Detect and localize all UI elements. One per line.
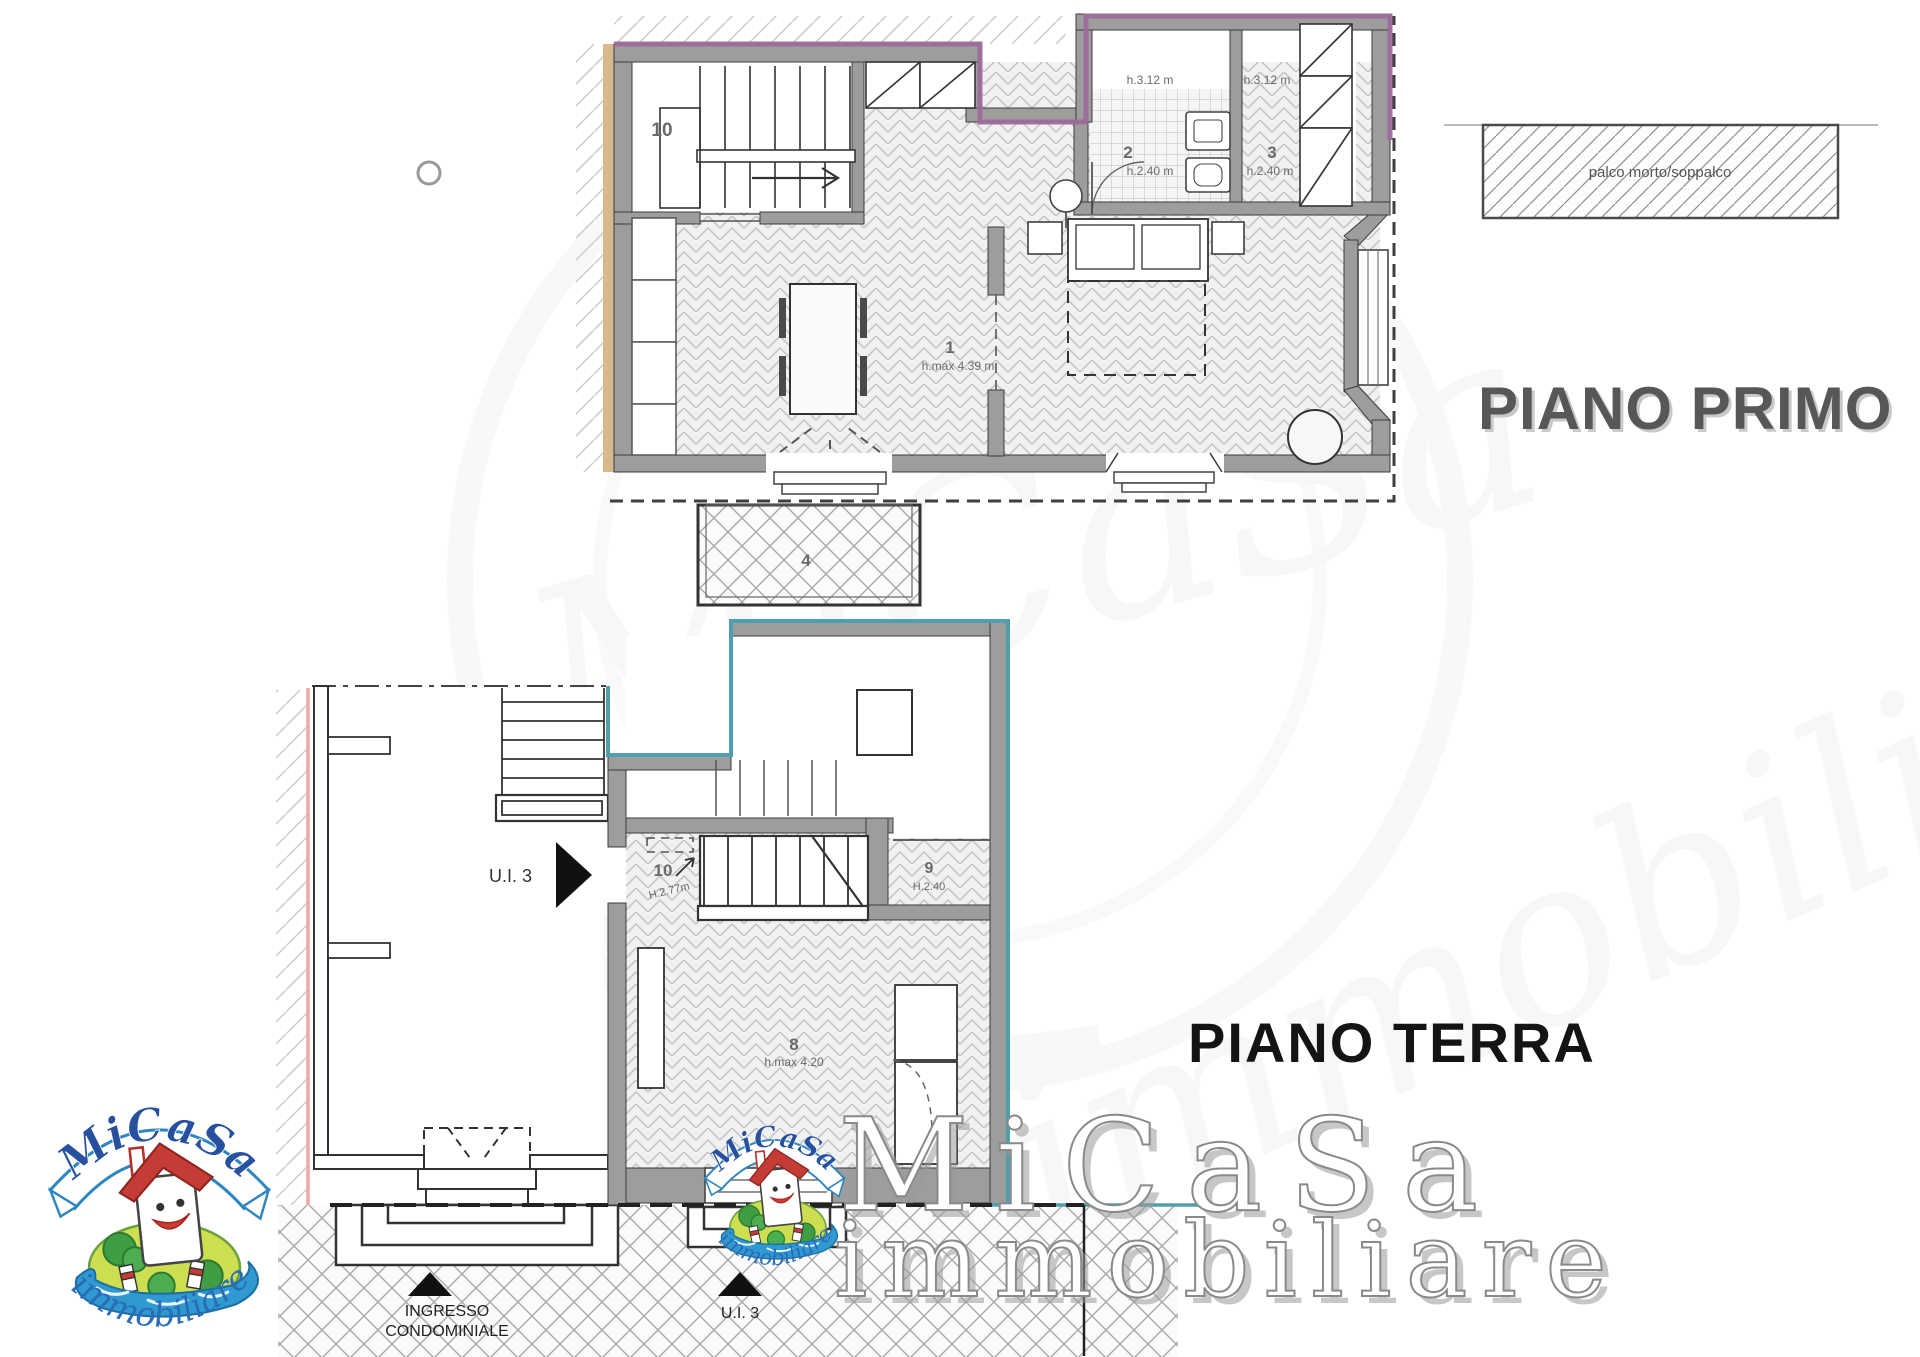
room9-parquet bbox=[888, 838, 990, 905]
registration-circle bbox=[418, 162, 440, 184]
hall-entrance-steps bbox=[336, 1205, 618, 1265]
room-2-height: h.2.40 m bbox=[1127, 164, 1174, 178]
piano-terra-text: PIANO TERRA bbox=[1188, 1011, 1596, 1074]
condominium-hall: U.I. 3 bbox=[314, 686, 618, 1265]
room-8-height: h.max 4.20 bbox=[764, 1055, 824, 1069]
legend: palco morto/soppalco bbox=[1444, 125, 1878, 218]
first-floor-title: PIANO PRIMO PIANO PRIMO bbox=[1478, 375, 1895, 445]
room-9-label: 9 bbox=[925, 860, 934, 877]
stair-shaft bbox=[857, 690, 912, 755]
room-3-label: 3 bbox=[1267, 143, 1276, 162]
unit-entrance-label: U.I. 3 bbox=[721, 1305, 759, 1322]
room-1-label: 1 bbox=[945, 338, 954, 357]
exterior-hatch-left bbox=[576, 44, 603, 472]
wardrobe-closet bbox=[1300, 24, 1352, 206]
unit-label-hall: U.I. 3 bbox=[489, 866, 532, 886]
closet-upper-height: h.3.12 m bbox=[1244, 73, 1291, 87]
tan-wall-edge bbox=[603, 44, 614, 472]
dining-table bbox=[779, 284, 867, 414]
round-table bbox=[1288, 410, 1342, 464]
bath-upper-height: h.3.12 m bbox=[1127, 73, 1174, 87]
room-3-height: h.2.40 m bbox=[1247, 164, 1294, 178]
ingresso-line1: INGRESSO bbox=[405, 1303, 489, 1320]
room-10t-label: 10 bbox=[654, 861, 673, 880]
ingresso-line2: CONDOMINIALE bbox=[385, 1323, 509, 1340]
watermark-subtitle: immobiliare bbox=[834, 1199, 1621, 1321]
wall-shelving bbox=[632, 218, 676, 455]
room-4-label: 4 bbox=[801, 551, 811, 570]
brand-watermark: MiCaSa immobiliare MiCaSa immobiliare bbox=[834, 1092, 1628, 1328]
bedroom-window bbox=[1106, 453, 1224, 492]
floor-plan-sheet: MiCaSa immobiliare MiCaSa immobiliare bbox=[0, 0, 1920, 1357]
room-2-label: 2 bbox=[1123, 143, 1132, 162]
exterior-hatch-top bbox=[614, 16, 1066, 44]
exterior-hatch-left-ground bbox=[276, 690, 308, 1205]
piano-primo-text: PIANO PRIMO bbox=[1478, 375, 1892, 442]
room-9-height: H.2.40 bbox=[913, 881, 945, 893]
unit-staircase bbox=[698, 836, 868, 920]
room-8-label: 8 bbox=[789, 1035, 798, 1054]
soppalco-hatch-squares bbox=[866, 62, 975, 108]
room-1-height: h.max 4.39 m bbox=[922, 359, 995, 373]
legend-label: palco morto/soppalco bbox=[1589, 164, 1732, 181]
bedroom-side-window bbox=[1358, 250, 1388, 385]
micasa-logo-large bbox=[46, 1097, 271, 1335]
room-10-label: 10 bbox=[651, 120, 672, 141]
